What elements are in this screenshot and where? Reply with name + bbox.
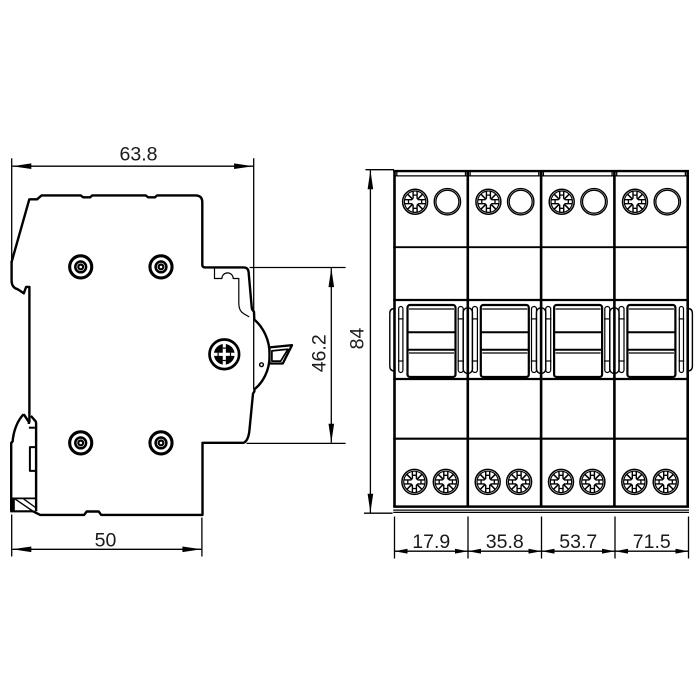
svg-text:50: 50 <box>95 530 117 552</box>
svg-text:46.2: 46.2 <box>309 334 331 372</box>
svg-text:84: 84 <box>347 328 369 350</box>
svg-text:35.8: 35.8 <box>486 531 524 553</box>
svg-text:63.8: 63.8 <box>120 143 158 165</box>
svg-text:17.9: 17.9 <box>412 531 450 553</box>
svg-text:71.5: 71.5 <box>633 531 671 553</box>
svg-text:53.7: 53.7 <box>559 531 597 553</box>
